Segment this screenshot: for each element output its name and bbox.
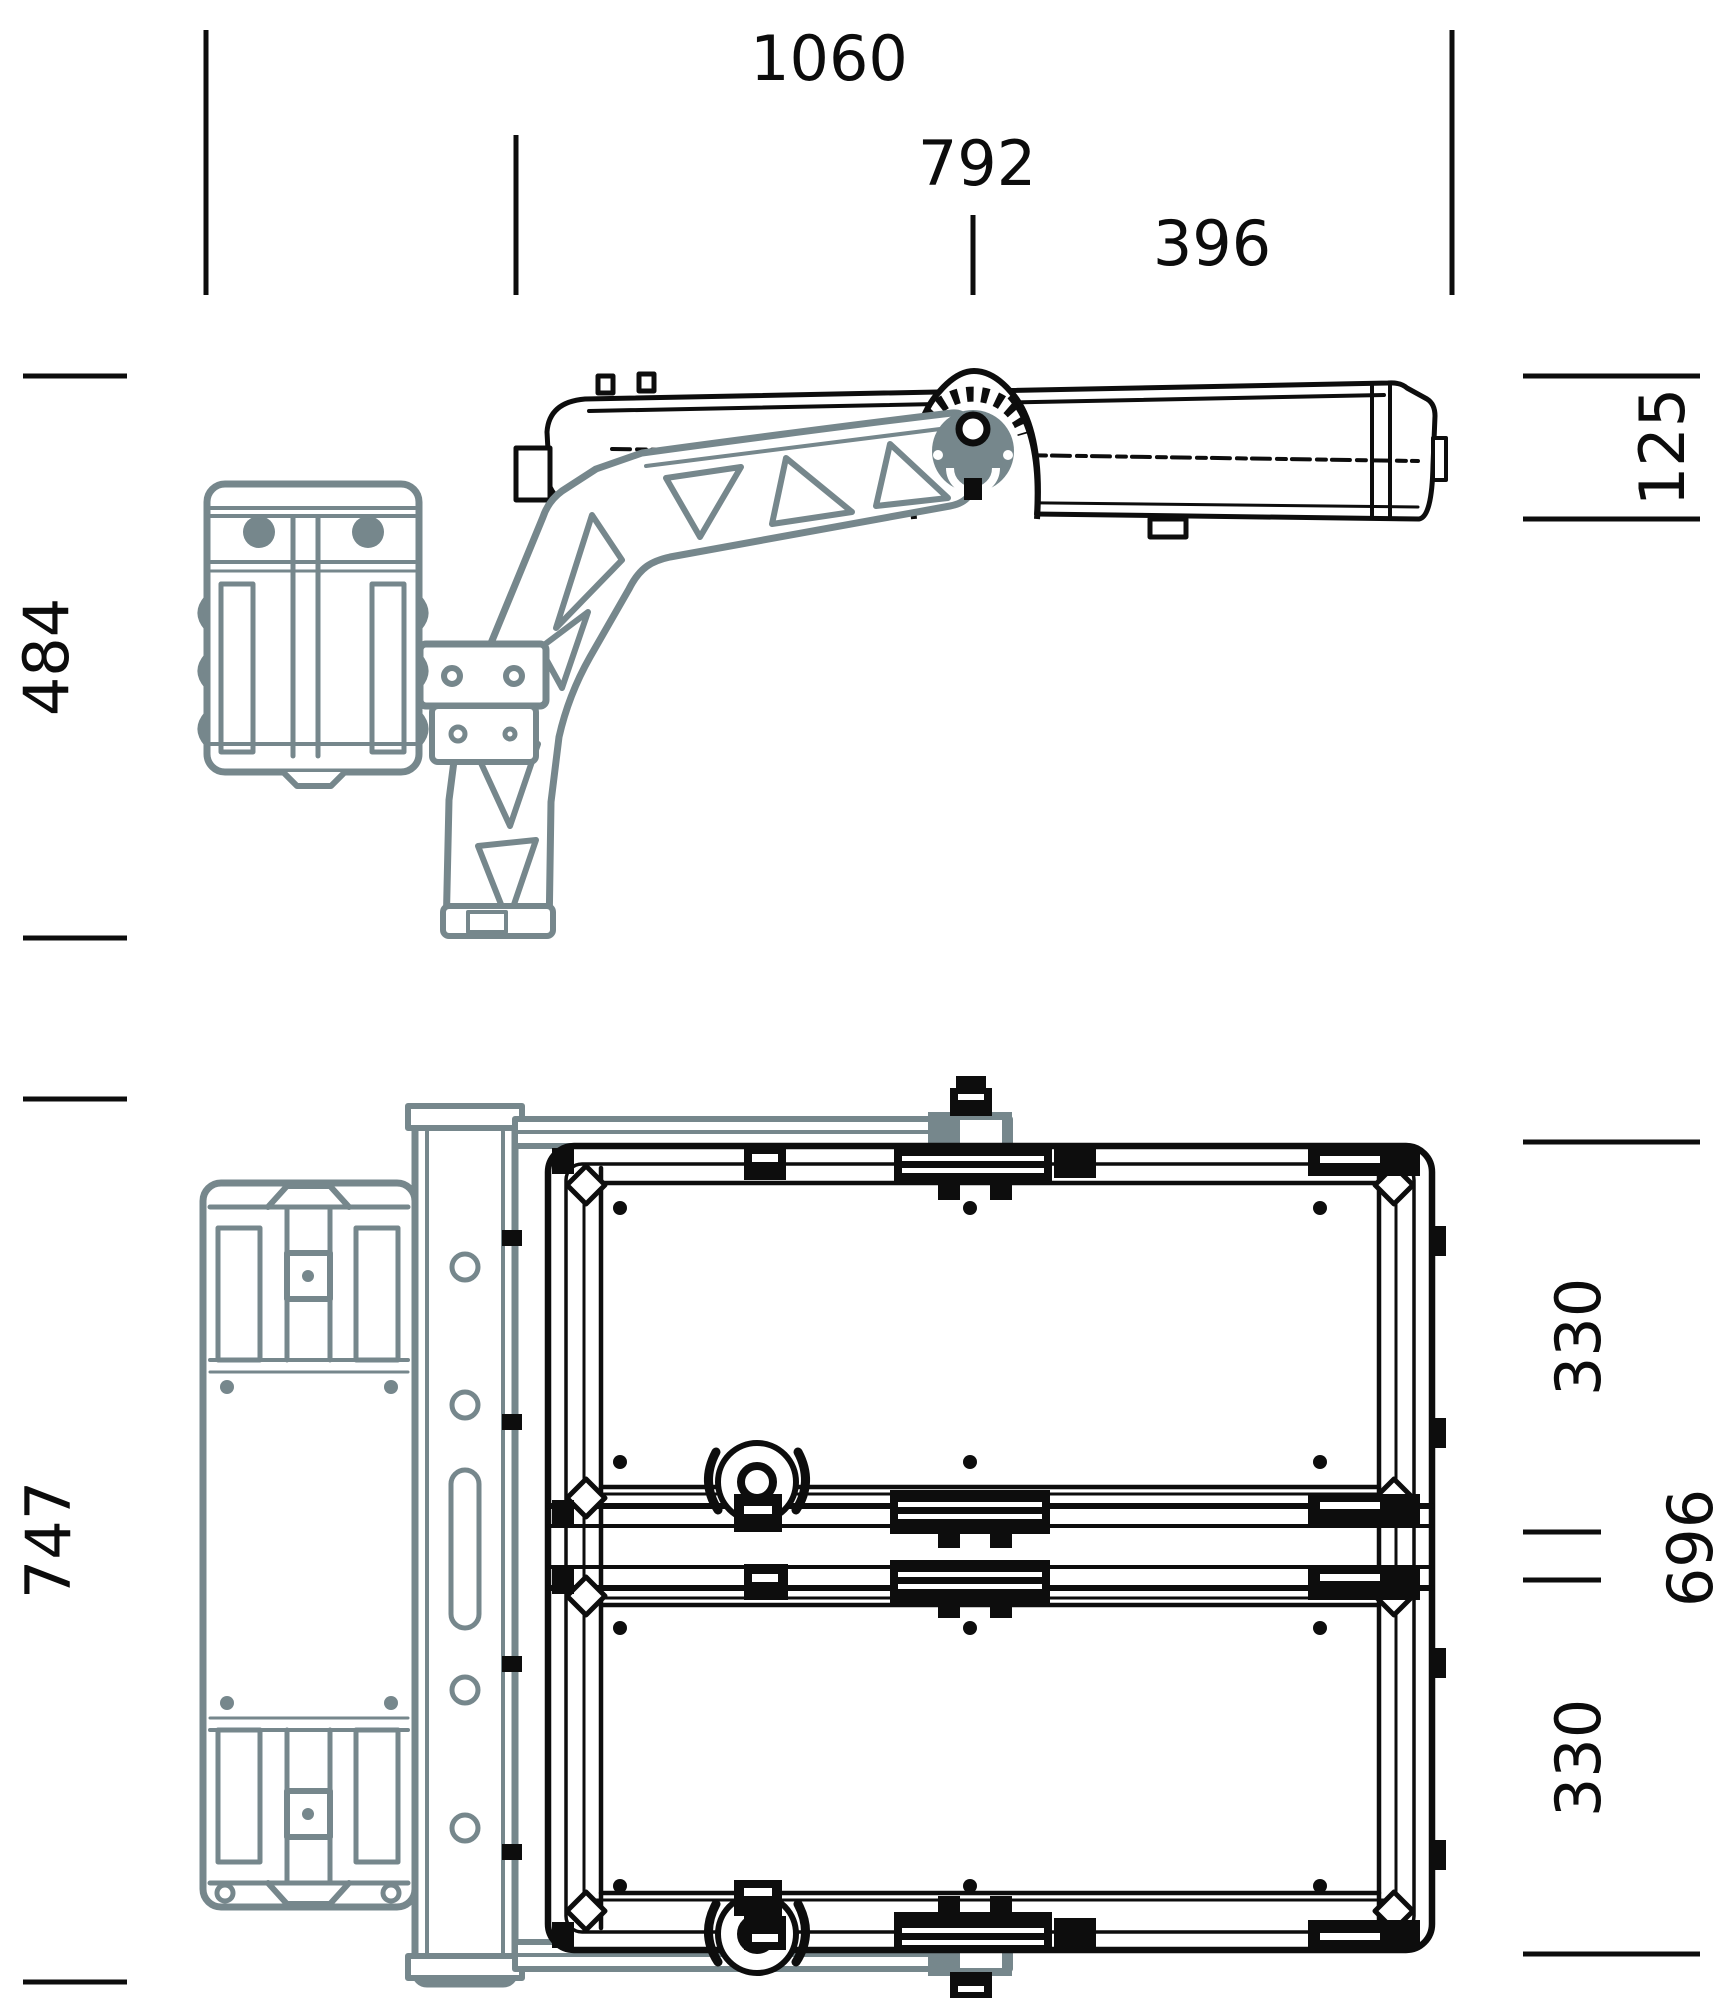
dim-label-housing-height: 696 (1654, 1489, 1714, 1607)
side-view-gearbox (201, 484, 426, 786)
dim-label-side-height: 484 (10, 598, 83, 716)
side-view (201, 371, 1447, 936)
dim-label-panel-bottom: 330 (1542, 1699, 1615, 1817)
dim-label-back-height: 747 (12, 1481, 85, 1599)
back-view-gearbox (203, 1183, 415, 1907)
dimension-drawing: 1060 792 396 484 747 125 330 696 330 (0, 0, 1714, 2000)
back-view (203, 1076, 1446, 1998)
back-view-housing (502, 1076, 1446, 1998)
drawing-canvas: 1060 792 396 484 747 125 330 696 330 (0, 0, 1714, 2000)
side-view-bracket-arm (420, 413, 973, 936)
dim-label-overall-width: 1060 (750, 22, 908, 95)
dim-label-housing-width: 792 (918, 127, 1036, 200)
dim-label-body-depth: 125 (1626, 388, 1699, 506)
dim-label-half-width: 396 (1153, 207, 1271, 280)
dim-label-panel-top: 330 (1542, 1278, 1615, 1396)
